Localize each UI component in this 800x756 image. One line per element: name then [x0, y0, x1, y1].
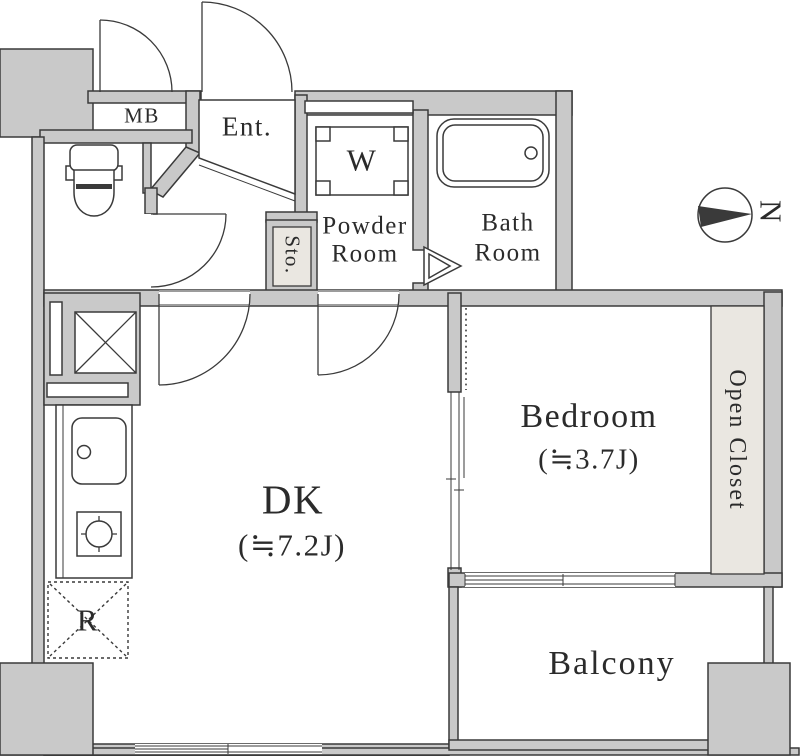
- refrigerator-label: R: [77, 605, 99, 636]
- mb-door-arc: [100, 20, 172, 92]
- balcony-label: Balcony: [548, 647, 675, 681]
- wall-bath-divider: [413, 110, 428, 250]
- washer-label: W: [347, 145, 378, 176]
- storage-label: Sto.: [282, 235, 303, 274]
- bath-folding-door-icon: [424, 247, 461, 285]
- bedroom-size-label: (≒3.7J): [538, 446, 640, 475]
- wall-right-outer: [764, 292, 782, 587]
- entrance-label: Ent.: [222, 114, 272, 141]
- bath-room-label-line2: Room: [474, 241, 541, 266]
- burner-icon: [86, 521, 112, 547]
- compass-north-label: N: [756, 200, 787, 224]
- kitchen-shelf-bar: [47, 383, 128, 397]
- bedroom-label: Bedroom: [520, 400, 657, 434]
- powder-room-label-line1: Powder: [322, 214, 407, 239]
- wall-toilet-right-upper: [143, 143, 151, 193]
- meter-box-label: MB: [124, 106, 160, 127]
- balcony-wall-right: [764, 587, 773, 665]
- bathtub-drain: [525, 147, 537, 159]
- bathtub-icon: [437, 119, 549, 187]
- wall-bottom-left-block: [0, 663, 93, 755]
- pipe-space-strip: [50, 302, 62, 375]
- wall-main-band: [44, 290, 782, 306]
- toilet-seat-line: [76, 184, 112, 189]
- compass-icon: [698, 188, 752, 242]
- dk-size-label: (≒7.2J): [238, 530, 346, 561]
- wall-bottom-right-block: [708, 663, 790, 755]
- wall-top-band-left: [88, 91, 201, 103]
- entrance-door-arc: [202, 2, 292, 92]
- dk-door-a-arc: [159, 294, 250, 385]
- opening-dk-door-b: [318, 290, 399, 306]
- floor-plan-drawing: [0, 0, 800, 756]
- bath-room-label-line1: Bath: [481, 211, 534, 236]
- toilet-bowl: [74, 170, 114, 216]
- faucet-icon: [78, 446, 91, 459]
- wall-toilet-top: [40, 130, 192, 143]
- dk-label: DK: [262, 480, 324, 521]
- toilet-tank: [70, 145, 118, 171]
- toilet-icon: [66, 145, 122, 216]
- toilet-door-arc: [151, 214, 226, 287]
- opening-dk-door-a: [159, 290, 250, 306]
- wall-partition-upper: [448, 293, 461, 392]
- floor-plan: MB Ent. W Powder Room Bath Room Sto. DK …: [0, 0, 800, 756]
- powder-room-label-line2: Room: [331, 242, 398, 267]
- wall-bath-right: [556, 91, 572, 292]
- balcony-wall-bottom: [449, 740, 711, 750]
- powder-shelf: [305, 101, 413, 113]
- open-closet-label: Open Closet: [725, 369, 749, 510]
- wall-top-left-block: [0, 49, 93, 137]
- opening-toilet-door: [143, 214, 153, 287]
- balcony-wall-left: [449, 587, 458, 744]
- wall-left-outer: [32, 137, 44, 667]
- wall-toilet-right-lower: [145, 188, 157, 214]
